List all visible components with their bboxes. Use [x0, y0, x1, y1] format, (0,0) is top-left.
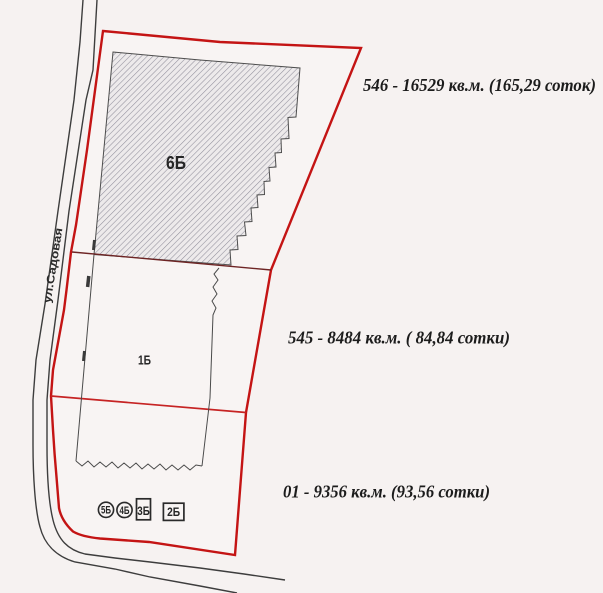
svg-text:2Б: 2Б — [167, 505, 180, 519]
svg-text:3Б: 3Б — [137, 504, 150, 518]
svg-text:546 - 16529 кв.м. (165,29 сото: 546 - 16529 кв.м. (165,29 соток) — [363, 75, 596, 96]
svg-text:6Б: 6Б — [166, 153, 186, 173]
svg-text:545 - 8484 кв.м. ( 84,84 сотки: 545 - 8484 кв.м. ( 84,84 сотки) — [288, 328, 510, 349]
svg-text:01 - 9356 кв.м. (93,56 сотки): 01 - 9356 кв.м. (93,56 сотки) — [283, 482, 490, 503]
svg-text:4Б: 4Б — [120, 505, 130, 517]
svg-text:1Б: 1Б — [138, 353, 151, 367]
svg-text:5Б: 5Б — [101, 505, 111, 517]
